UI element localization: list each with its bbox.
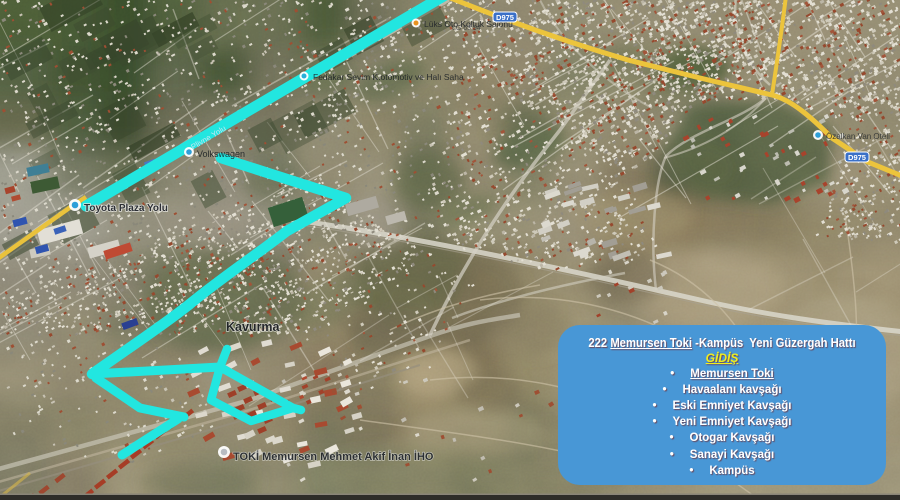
svg-text:LG 63 94: LG 63 94 bbox=[452, 25, 481, 32]
svg-text:Özalkan Van Oteli: Özalkan Van Oteli bbox=[826, 132, 890, 141]
svg-text:Toyota Plaza Yolu: Toyota Plaza Yolu bbox=[84, 203, 168, 214]
svg-text:Volkswagen: Volkswagen bbox=[197, 149, 245, 159]
svg-text:D975: D975 bbox=[496, 13, 514, 22]
svg-text:Fedakar Sevim K.otomotiv ve H: Fedakar Sevim K.otomotiv ve Halı Saha bbox=[313, 72, 464, 82]
svg-text:D975: D975 bbox=[848, 153, 866, 162]
svg-text:TOKİ Memursen Mehmet Akif İnan: TOKİ Memursen Mehmet Akif İnan İHO bbox=[233, 450, 434, 463]
svg-text:Kavurma: Kavurma bbox=[226, 320, 281, 334]
